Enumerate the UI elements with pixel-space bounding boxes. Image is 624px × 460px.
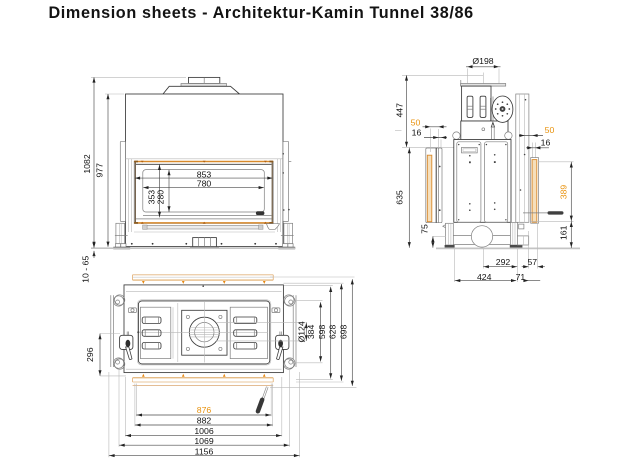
svg-text:75: 75 [420, 224, 430, 234]
svg-text:16: 16 [412, 127, 422, 137]
svg-text:876: 876 [197, 405, 212, 415]
svg-text:424: 424 [477, 272, 492, 282]
svg-text:635: 635 [394, 190, 404, 205]
svg-text:161: 161 [558, 225, 568, 240]
svg-text:977: 977 [94, 163, 104, 178]
svg-text:1069: 1069 [194, 436, 213, 446]
svg-text:598: 598 [317, 324, 327, 339]
svg-text:628: 628 [328, 324, 338, 339]
svg-text:10 - 65: 10 - 65 [81, 256, 91, 283]
svg-text:57: 57 [527, 257, 537, 267]
svg-text:384: 384 [306, 324, 316, 339]
svg-text:296: 296 [85, 347, 95, 362]
svg-text:Ø198: Ø198 [472, 56, 493, 66]
svg-text:16: 16 [541, 138, 551, 148]
svg-text:292: 292 [496, 257, 511, 267]
svg-text:50: 50 [545, 125, 555, 135]
svg-text:447: 447 [395, 103, 405, 118]
svg-text:1082: 1082 [82, 154, 92, 173]
svg-text:780: 780 [197, 179, 212, 189]
svg-text:1156: 1156 [195, 446, 214, 456]
svg-text:389: 389 [558, 185, 568, 200]
svg-text:71: 71 [516, 272, 526, 282]
svg-text:698: 698 [338, 324, 348, 339]
svg-text:Dimension sheets - Architektur: Dimension sheets - Architektur-Kamin Tun… [49, 4, 474, 22]
svg-text:280: 280 [155, 190, 165, 205]
svg-text:882: 882 [197, 416, 212, 426]
svg-text:50: 50 [411, 118, 421, 128]
svg-text:1006: 1006 [194, 426, 213, 436]
